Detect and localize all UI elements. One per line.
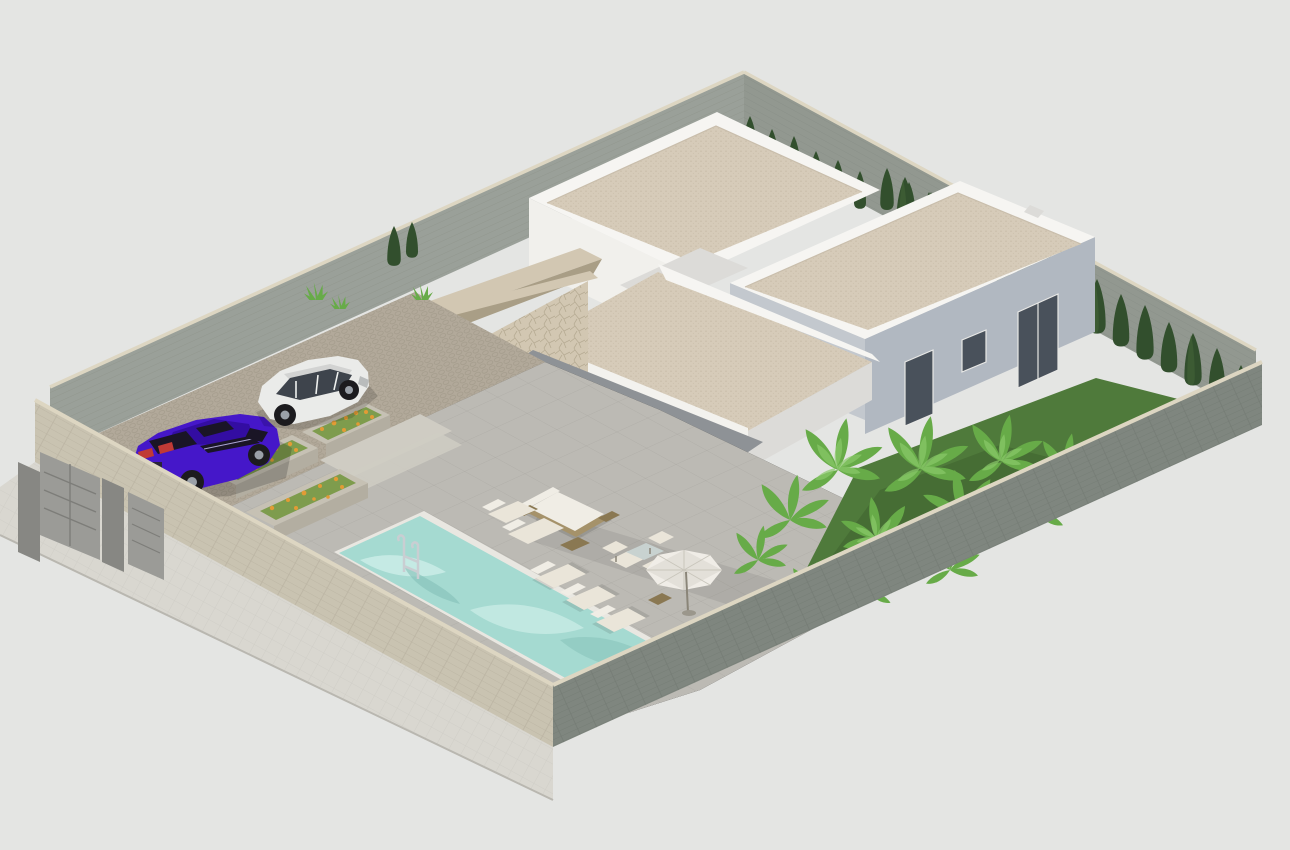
villa-render: Isometric 3D render of a modern single-s… <box>0 0 1290 850</box>
gate-pillar-left <box>18 462 40 562</box>
render-canvas: Isometric 3D render of a modern single-s… <box>0 0 1290 850</box>
gate-pillar-mid <box>102 478 124 572</box>
